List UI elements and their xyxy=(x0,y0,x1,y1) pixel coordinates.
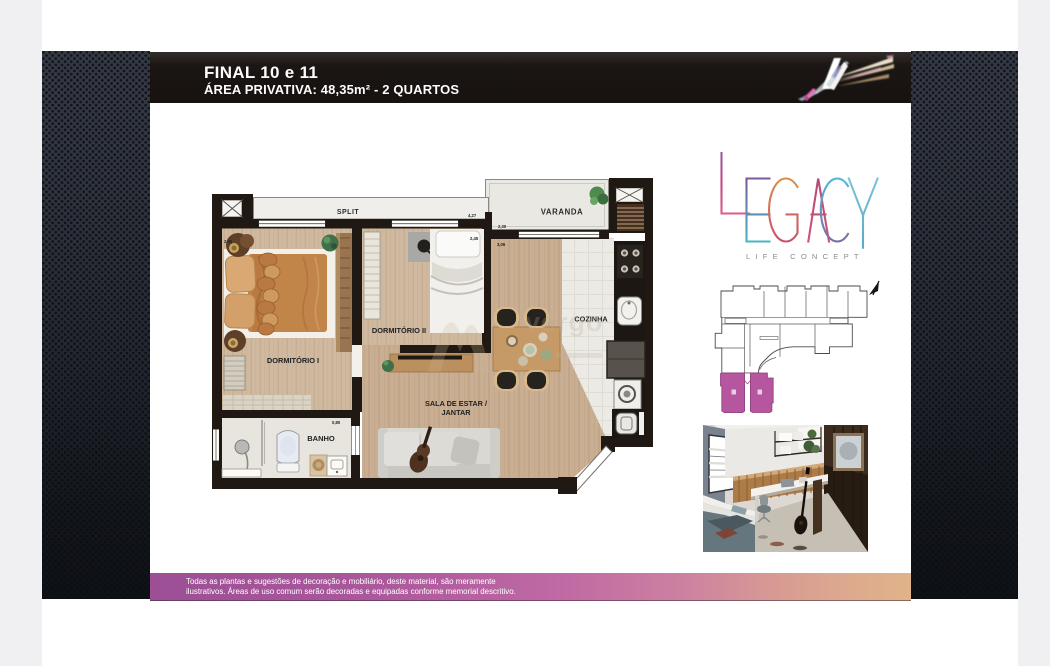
svg-text:SALA DE ESTAR /: SALA DE ESTAR / xyxy=(425,399,487,408)
svg-text:BANHO: BANHO xyxy=(307,434,335,443)
svg-text:2,30: 2,30 xyxy=(498,224,507,229)
svg-text:2,45: 2,45 xyxy=(470,236,479,241)
svg-text:JANTAR: JANTAR xyxy=(441,408,471,417)
svg-text:DORMITÓRIO II: DORMITÓRIO II xyxy=(372,326,426,335)
svg-text:2,06: 2,06 xyxy=(224,239,233,244)
svg-text:vergo: vergo xyxy=(525,307,604,337)
svg-text:4,27: 4,27 xyxy=(468,213,477,218)
svg-text:VARANDA: VARANDA xyxy=(541,208,584,217)
svg-text:LIFE CONCEPT: LIFE CONCEPT xyxy=(746,252,864,261)
svg-text:SPLIT: SPLIT xyxy=(337,209,360,216)
svg-text:DORMITÓRIO I: DORMITÓRIO I xyxy=(267,356,319,365)
svg-text:0,80: 0,80 xyxy=(332,420,341,425)
svg-text:3,06: 3,06 xyxy=(497,242,506,247)
